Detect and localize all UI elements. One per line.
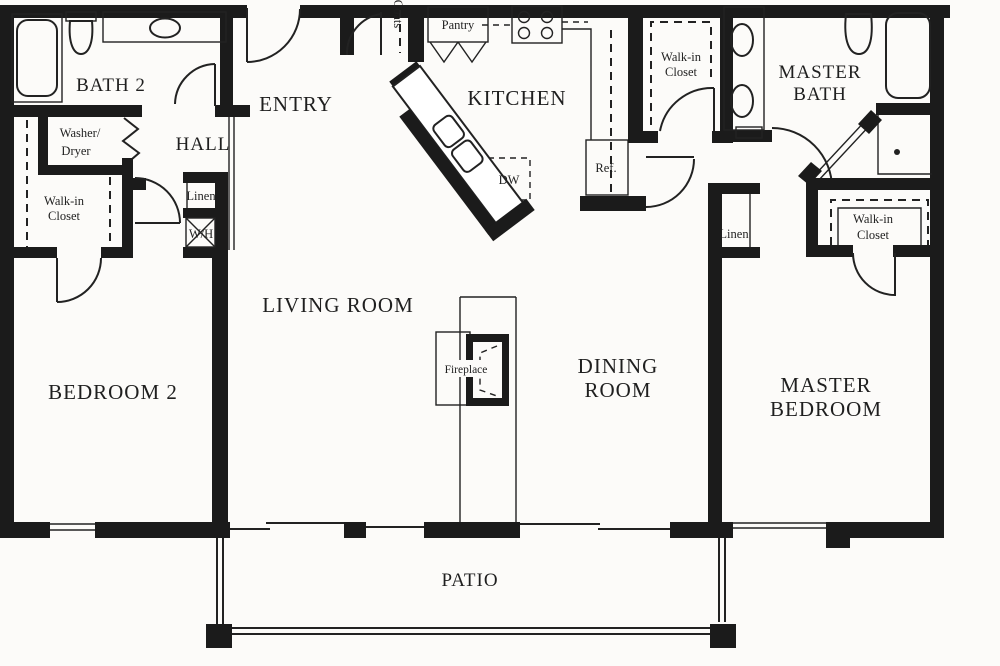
floor-plan: BATH 2 HALL ENTRY KITCHEN LIVING ROOM DI… [0,0,1000,666]
walkin-closet-left [14,120,133,258]
label-living-room: LIVING ROOM [262,293,414,317]
label-kitchen: KITCHEN [467,86,566,110]
label-master-bath-1: MASTER [778,62,861,83]
label-washer-2: Dryer [61,144,91,158]
shower-icon [798,110,932,185]
coats-closet [340,5,424,62]
bath2-room [0,5,250,117]
floor-plan-drawing: BATH 2 HALL ENTRY KITCHEN LIVING ROOM DI… [0,0,1000,666]
toilet-icon [845,14,871,54]
toilet-icon [66,12,96,54]
bifold-door-icon [123,118,139,165]
entry-door [247,8,300,62]
patio-post [206,624,232,648]
label-master-bedroom-2: BEDROOM [770,397,882,421]
label-walkin-left-1: Walk-in [44,194,85,208]
linen-wh-closets [183,172,228,258]
label-walkin-right-1: Walk-in [853,212,894,226]
label-master-bedroom-1: MASTER [780,373,871,397]
label-fireplace: Fireplace [445,364,488,376]
label-walkin-tr-2: Closet [665,65,697,79]
label-dishwasher: DW [499,173,520,187]
label-walkin-left-2: Closet [48,209,80,223]
counter-edge [562,29,591,140]
label-walkin-tr-1: Walk-in [661,50,702,64]
label-hall: HALL [176,134,231,155]
label-pantry: Pantry [442,18,475,32]
label-washer-1: Washer/ [60,126,101,140]
label-bath2: BATH 2 [76,75,146,96]
label-walkin-right-2: Closet [857,228,889,242]
label-water-heater: W/H [189,227,213,241]
label-entry: ENTRY [259,92,333,116]
fireplace [436,297,516,522]
patio-post [710,624,736,648]
patio-area [206,538,736,648]
label-linen-left: Linen [186,189,216,203]
master-hall-door [646,157,694,207]
label-refrigerator: Ref. [595,161,616,175]
bathtub-icon [12,14,62,102]
label-linen-right: Linen [719,227,749,241]
label-dining-1: DINING [578,354,659,378]
label-master-bath-2: BATH [793,84,847,105]
label-bedroom2: BEDROOM 2 [48,380,178,404]
bath2-door [175,64,215,106]
label-dining-2: ROOM [584,378,651,402]
label-patio: PATIO [441,570,498,591]
label-coats: Coats [391,0,405,28]
fireplace-label: Fireplace [437,360,495,377]
bathtub-icon [886,13,930,98]
